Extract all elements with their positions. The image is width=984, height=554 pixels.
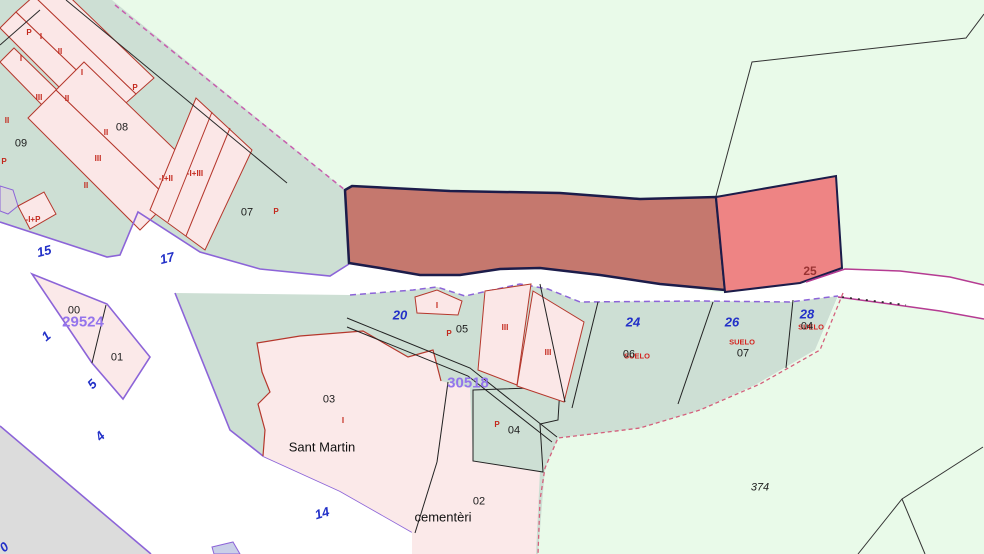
parcel-highlight-25[interactable] — [716, 176, 842, 292]
map-canvas[interactable] — [0, 0, 984, 554]
cadastral-map[interactable]: PIIIIIIIIIIIIP0809IIIIIPII-I+P-I+II-I+II… — [0, 0, 984, 554]
